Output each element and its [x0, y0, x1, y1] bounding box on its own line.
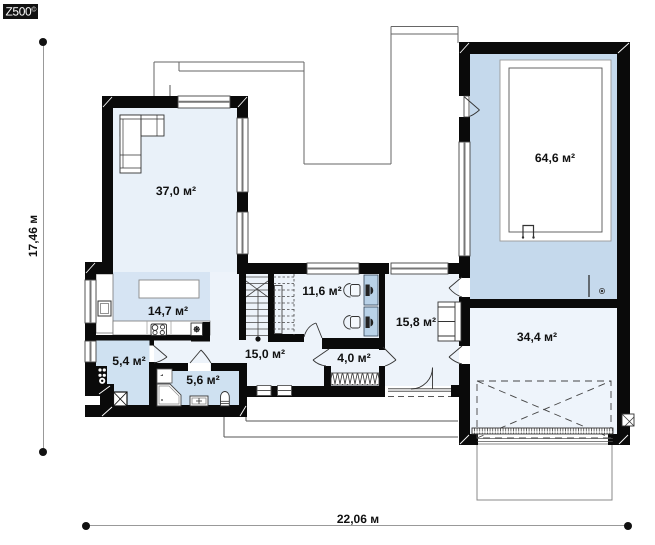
- svg-text:14,7 м²: 14,7 м²: [148, 304, 188, 318]
- svg-text:15,0 м²: 15,0 м²: [245, 347, 285, 361]
- svg-text:34,4 м²: 34,4 м²: [517, 330, 557, 344]
- svg-text:15,8 м²: 15,8 м²: [396, 315, 436, 329]
- svg-text:64,6 м²: 64,6 м²: [535, 151, 575, 165]
- svg-text:5,6 м²: 5,6 м²: [186, 373, 219, 387]
- svg-text:4,0 м²: 4,0 м²: [337, 351, 370, 365]
- svg-text:22,06 м: 22,06 м: [337, 512, 379, 526]
- svg-text:37,0 м²: 37,0 м²: [156, 184, 196, 198]
- svg-text:17,46 м: 17,46 м: [26, 215, 40, 257]
- svg-text:11,6 м²: 11,6 м²: [302, 284, 342, 298]
- svg-text:5,4 м²: 5,4 м²: [112, 354, 145, 368]
